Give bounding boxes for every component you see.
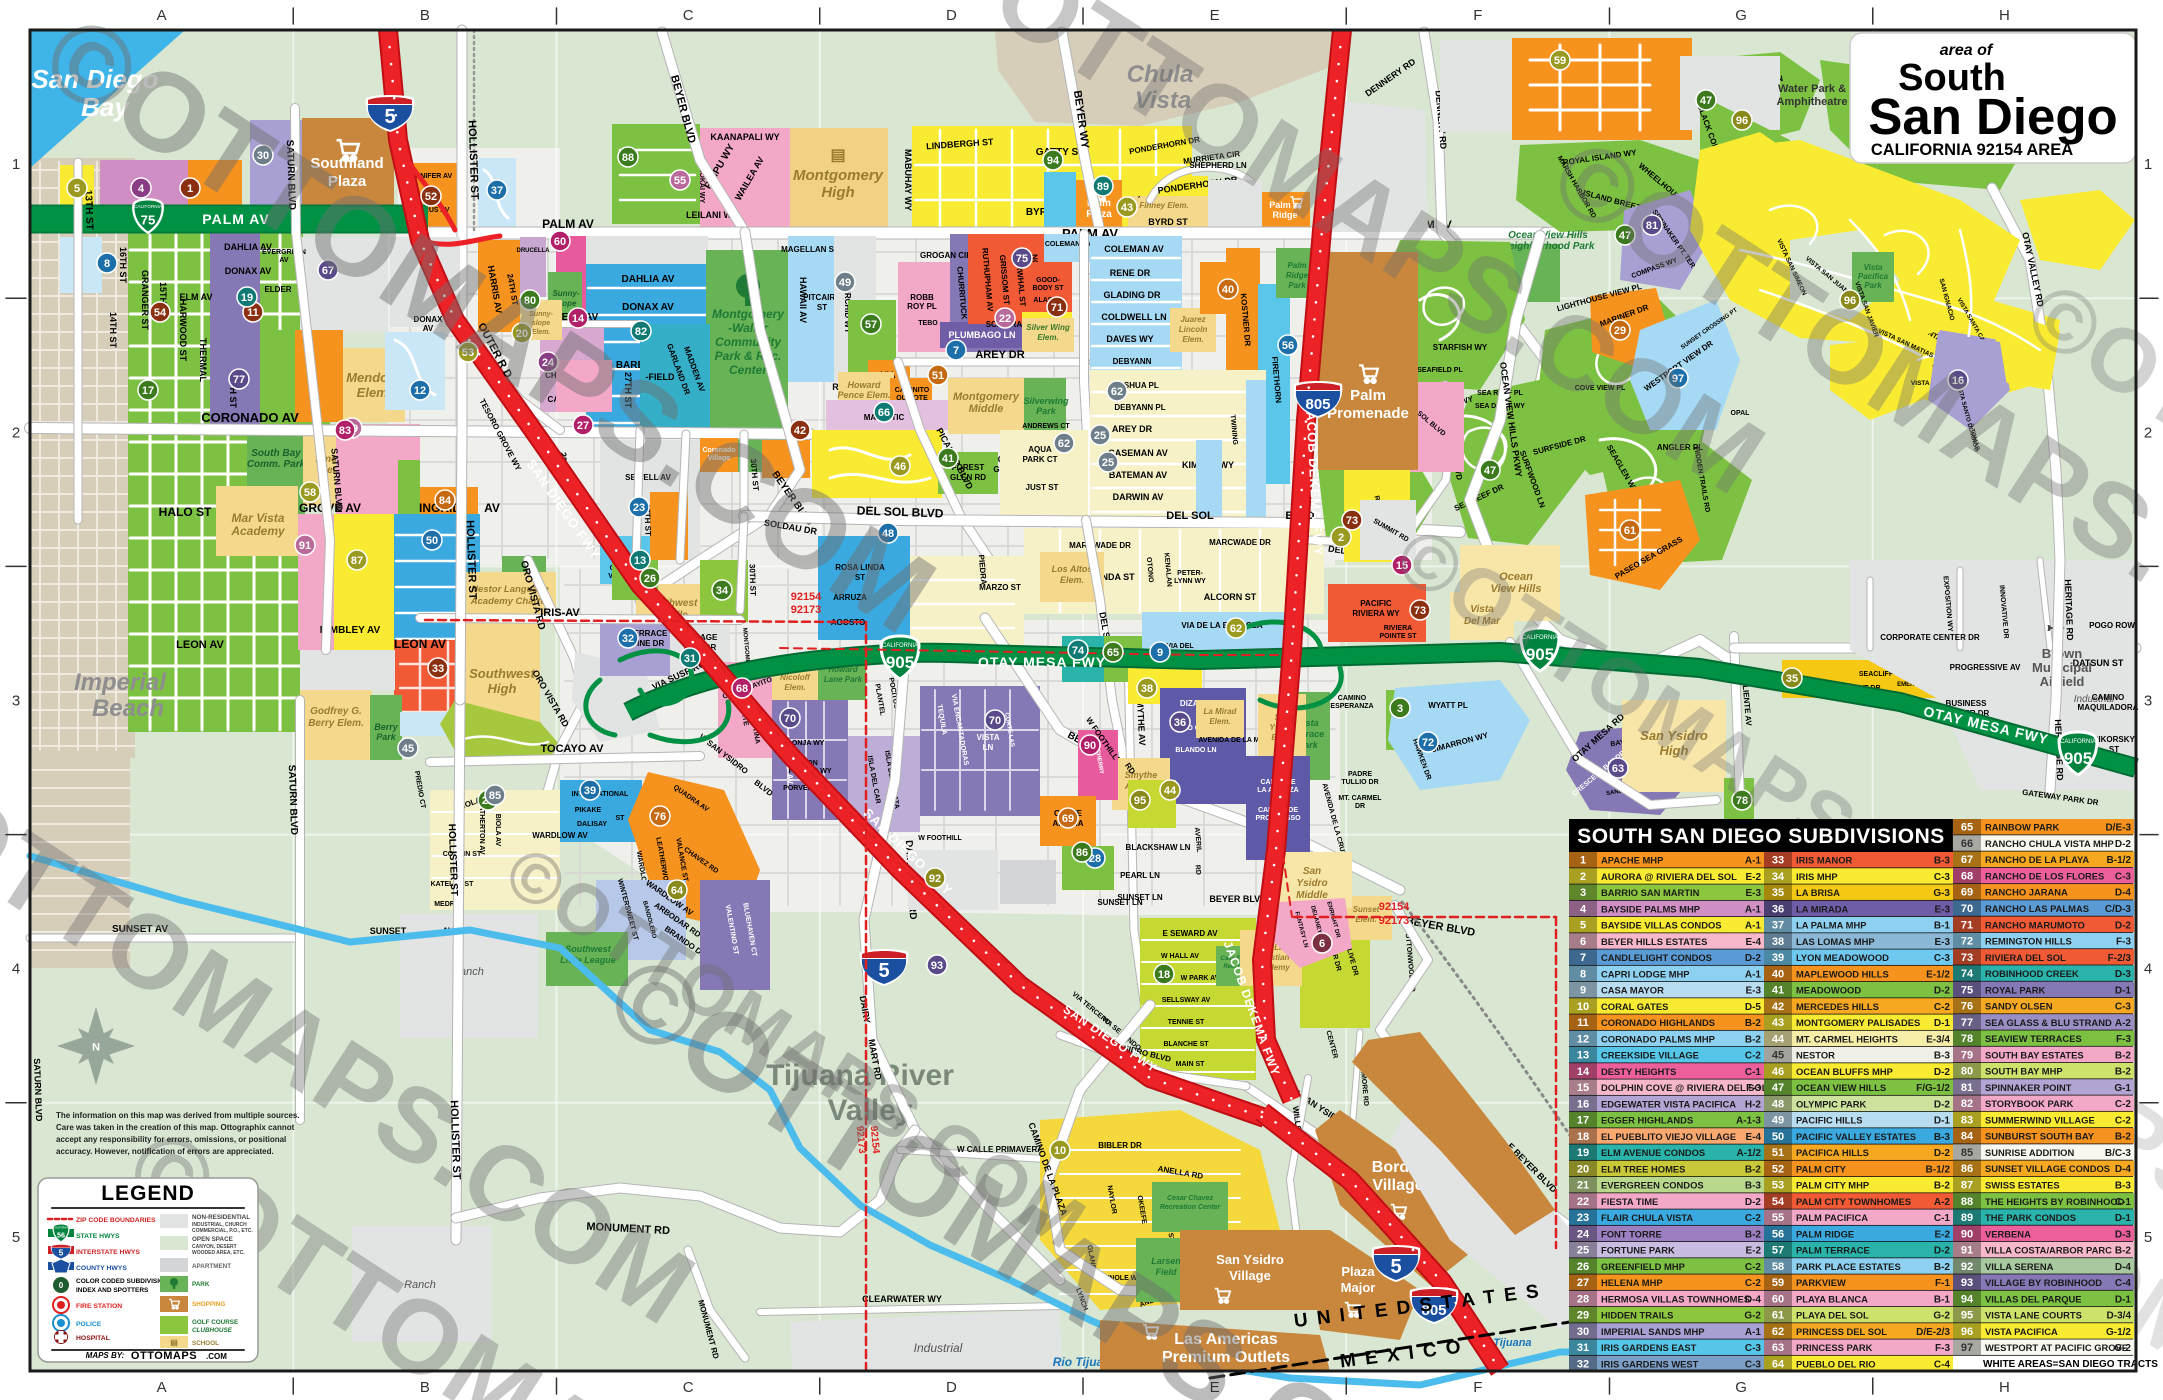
svg-text:B/C-3: B/C-3 bbox=[2105, 1148, 2132, 1159]
svg-text:E-3/4: E-3/4 bbox=[1926, 1034, 1950, 1045]
svg-text:54: 54 bbox=[154, 307, 167, 319]
svg-text:DEBYANN: DEBYANN bbox=[1113, 357, 1152, 366]
svg-text:79: 79 bbox=[1961, 1049, 1973, 1061]
svg-text:11: 11 bbox=[1577, 1017, 1589, 1029]
svg-text:ROBB: ROBB bbox=[910, 293, 934, 302]
svg-text:BEYER BLVD: BEYER BLVD bbox=[1209, 894, 1267, 904]
svg-text:12: 12 bbox=[414, 385, 426, 397]
svg-text:E-3: E-3 bbox=[1745, 986, 1761, 997]
svg-text:4: 4 bbox=[12, 961, 20, 978]
svg-text:40: 40 bbox=[1222, 284, 1234, 296]
svg-text:SCHOOL: SCHOOL bbox=[192, 1340, 219, 1347]
svg-text:Amphitheatre: Amphitheatre bbox=[1777, 96, 1848, 108]
svg-text:EL PUEBLITO VIEJO VILLAGE: EL PUEBLITO VIEJO VILLAGE bbox=[1601, 1131, 1736, 1142]
svg-text:OCEAN VIEW HILLS: OCEAN VIEW HILLS bbox=[1796, 1082, 1886, 1093]
svg-text:PLUMBAGO LN: PLUMBAGO LN bbox=[949, 330, 1016, 340]
svg-text:APARTMENT: APARTMENT bbox=[192, 1263, 231, 1270]
svg-text:C-3: C-3 bbox=[1745, 1343, 1762, 1354]
svg-text:55: 55 bbox=[1772, 1212, 1784, 1224]
svg-text:VERBENA: VERBENA bbox=[1985, 1228, 2031, 1239]
svg-text:A-1/2: A-1/2 bbox=[1737, 1148, 1762, 1159]
svg-text:PARK PLACE ESTATES: PARK PLACE ESTATES bbox=[1796, 1261, 1901, 1272]
svg-text:E-3: E-3 bbox=[1934, 904, 1950, 915]
svg-text:SUNSET LN: SUNSET LN bbox=[1097, 898, 1143, 907]
svg-text:POLICE: POLICE bbox=[76, 1321, 102, 1328]
svg-text:Industrial: Industrial bbox=[914, 1341, 963, 1355]
svg-text:B-2: B-2 bbox=[2115, 1067, 2132, 1078]
svg-text:92: 92 bbox=[929, 873, 941, 885]
svg-text:85: 85 bbox=[1961, 1147, 1973, 1159]
svg-text:22: 22 bbox=[999, 313, 1011, 325]
svg-text:E-4: E-4 bbox=[1745, 937, 1761, 948]
svg-text:H: H bbox=[1999, 7, 2010, 24]
svg-text:8: 8 bbox=[104, 258, 110, 270]
svg-text:D-5: D-5 bbox=[1745, 1002, 1762, 1013]
svg-text:45: 45 bbox=[1772, 1050, 1784, 1062]
svg-text:CALIFORNIA 92154 AREA: CALIFORNIA 92154 AREA bbox=[1871, 141, 2073, 159]
svg-text:Montgomery: Montgomery bbox=[953, 391, 1020, 403]
svg-text:OPEN SPACE: OPEN SPACE bbox=[192, 1236, 233, 1243]
svg-text:SOUTH BAY ESTATES: SOUTH BAY ESTATES bbox=[1985, 1049, 2084, 1060]
svg-text:TENNIE ST: TENNIE ST bbox=[1168, 1019, 1205, 1026]
svg-text:ELM AVENUE CONDOS: ELM AVENUE CONDOS bbox=[1601, 1147, 1705, 1158]
svg-text:IRIS GARDENS EAST: IRIS GARDENS EAST bbox=[1601, 1342, 1697, 1353]
svg-text:LEON AV: LEON AV bbox=[394, 637, 446, 651]
svg-text:High: High bbox=[821, 184, 854, 201]
svg-text:IRIS MANOR: IRIS MANOR bbox=[1796, 855, 1852, 866]
svg-text:77: 77 bbox=[233, 374, 245, 386]
svg-text:D: D bbox=[946, 7, 957, 24]
svg-text:D-3: D-3 bbox=[2115, 1229, 2132, 1240]
svg-text:BLACKSHAW LN: BLACKSHAW LN bbox=[1126, 843, 1191, 852]
svg-text:86: 86 bbox=[1961, 1163, 1973, 1175]
svg-text:MARZO ST: MARZO ST bbox=[979, 583, 1021, 592]
svg-text:19: 19 bbox=[241, 292, 253, 304]
svg-text:3: 3 bbox=[12, 693, 20, 710]
svg-text:B-2: B-2 bbox=[1745, 1018, 1762, 1029]
svg-text:91: 91 bbox=[299, 540, 311, 552]
svg-text:D-4: D-4 bbox=[2115, 1262, 2132, 1273]
svg-text:IMPERIAL SANDS MHP: IMPERIAL SANDS MHP bbox=[1601, 1326, 1704, 1337]
svg-text:47: 47 bbox=[1700, 95, 1712, 107]
svg-text:86: 86 bbox=[1076, 847, 1088, 859]
svg-text:40: 40 bbox=[1772, 968, 1784, 980]
svg-text:PALM RIDGE: PALM RIDGE bbox=[1796, 1228, 1854, 1239]
svg-text:Vista: Vista bbox=[1864, 263, 1883, 272]
svg-text:46: 46 bbox=[894, 461, 906, 473]
svg-text:A: A bbox=[157, 7, 167, 24]
svg-text:Pacifica: Pacifica bbox=[1858, 272, 1889, 281]
svg-text:DONAX AV: DONAX AV bbox=[225, 266, 272, 276]
svg-text:MAPS BY:: MAPS BY: bbox=[86, 1351, 125, 1360]
svg-text:CALIFORNIA: CALIFORNIA bbox=[134, 204, 163, 209]
svg-text:A-1-3: A-1-3 bbox=[1736, 1116, 1761, 1127]
svg-text:24: 24 bbox=[1577, 1228, 1590, 1240]
svg-text:B: B bbox=[420, 1379, 430, 1396]
svg-text:5: 5 bbox=[2144, 1229, 2152, 1246]
svg-text:16TH ST: 16TH ST bbox=[118, 247, 128, 284]
svg-text:C-2: C-2 bbox=[1745, 1051, 1762, 1062]
svg-text:FIESTA TIME: FIESTA TIME bbox=[1601, 1196, 1658, 1207]
svg-text:9: 9 bbox=[1157, 647, 1163, 659]
svg-text:Los Altos: Los Altos bbox=[1052, 564, 1093, 574]
svg-text:MAGELLAN ST: MAGELLAN ST bbox=[781, 245, 839, 254]
svg-text:PUEBLO DEL RIO: PUEBLO DEL RIO bbox=[1796, 1358, 1876, 1369]
svg-text:COLOR CODED SUBDIVISION: COLOR CODED SUBDIVISION bbox=[76, 1278, 169, 1285]
svg-text:28: 28 bbox=[1577, 1293, 1589, 1305]
svg-text:87: 87 bbox=[1961, 1179, 1973, 1191]
svg-text:D-2: D-2 bbox=[1745, 953, 1762, 964]
svg-text:.COM: .COM bbox=[206, 1352, 227, 1361]
svg-text:PACIFIC HILLS: PACIFIC HILLS bbox=[1796, 1115, 1863, 1126]
svg-text:65: 65 bbox=[1107, 647, 1119, 659]
svg-text:93: 93 bbox=[1961, 1277, 1973, 1289]
svg-text:PALM CITY MHP: PALM CITY MHP bbox=[1796, 1180, 1869, 1191]
svg-text:BATEMAN AV: BATEMAN AV bbox=[1109, 470, 1167, 480]
svg-text:73: 73 bbox=[1346, 515, 1358, 527]
svg-text:HERMOSA VILLAS TOWNHOMES: HERMOSA VILLAS TOWNHOMES bbox=[1601, 1293, 1750, 1304]
svg-text:APACHE MHP: APACHE MHP bbox=[1601, 855, 1663, 866]
svg-text:12: 12 bbox=[1577, 1033, 1589, 1045]
svg-text:OTTOMAPS: OTTOMAPS bbox=[131, 1350, 197, 1362]
svg-text:85: 85 bbox=[489, 790, 501, 802]
svg-text:MERCEDES HILLS: MERCEDES HILLS bbox=[1796, 1001, 1879, 1012]
svg-text:WOODED AREA, ETC.: WOODED AREA, ETC. bbox=[192, 1250, 245, 1256]
svg-text:E-2: E-2 bbox=[1934, 1229, 1950, 1240]
svg-text:H-2: H-2 bbox=[1745, 1099, 1762, 1110]
svg-text:GOLF COURSE: GOLF COURSE bbox=[192, 1319, 238, 1326]
svg-text:DRUCELLA: DRUCELLA bbox=[517, 248, 551, 254]
svg-text:BODY ST: BODY ST bbox=[1033, 285, 1065, 292]
svg-text:GROGAN CIR: GROGAN CIR bbox=[920, 251, 972, 260]
svg-text:15: 15 bbox=[1577, 1082, 1589, 1094]
svg-text:Godfrey G.: Godfrey G. bbox=[310, 706, 362, 717]
svg-text:8: 8 bbox=[1580, 968, 1586, 980]
svg-text:F-2/3: F-2/3 bbox=[2108, 953, 2132, 964]
svg-text:Montgomery: Montgomery bbox=[793, 167, 884, 184]
svg-text:DAVES WY: DAVES WY bbox=[1106, 334, 1153, 344]
svg-text:MAPLEWOOD HILLS: MAPLEWOOD HILLS bbox=[1796, 968, 1889, 979]
svg-text:55: 55 bbox=[674, 175, 686, 187]
svg-text:D-2: D-2 bbox=[1934, 1246, 1951, 1257]
svg-text:16: 16 bbox=[1577, 1098, 1589, 1110]
svg-text:B-2: B-2 bbox=[2115, 1132, 2132, 1143]
svg-text:56: 56 bbox=[1772, 1228, 1784, 1240]
svg-text:ZIP CODE BOUNDARIES: ZIP CODE BOUNDARIES bbox=[76, 1217, 156, 1224]
svg-text:18: 18 bbox=[1158, 969, 1170, 981]
svg-text:13: 13 bbox=[634, 555, 646, 567]
svg-text:DESTY HEIGHTS: DESTY HEIGHTS bbox=[1601, 1066, 1676, 1077]
svg-text:B-2: B-2 bbox=[1934, 1262, 1951, 1273]
svg-text:31: 31 bbox=[1577, 1342, 1589, 1354]
svg-text:F: F bbox=[1473, 7, 1482, 24]
svg-text:1: 1 bbox=[2144, 156, 2152, 173]
svg-text:DONAX AV: DONAX AV bbox=[622, 302, 674, 313]
svg-text:Howard: Howard bbox=[847, 380, 881, 390]
svg-text:44: 44 bbox=[1772, 1033, 1785, 1045]
svg-text:9: 9 bbox=[1580, 985, 1586, 997]
svg-text:B-1/2: B-1/2 bbox=[2107, 855, 2132, 866]
svg-text:92: 92 bbox=[1961, 1261, 1973, 1273]
svg-text:San Ysidro: San Ysidro bbox=[1216, 1252, 1284, 1267]
svg-text:F/G-1/2: F/G-1/2 bbox=[1916, 1083, 1950, 1094]
svg-text:PALM CITY: PALM CITY bbox=[1796, 1163, 1847, 1174]
svg-text:ST: ST bbox=[616, 815, 626, 822]
svg-text:51: 51 bbox=[932, 370, 944, 382]
svg-text:accept any responsibility for: accept any responsibility for errors, om… bbox=[56, 1135, 286, 1144]
svg-text:D-2: D-2 bbox=[1934, 1067, 1951, 1078]
svg-text:GLADING DR: GLADING DR bbox=[1104, 290, 1161, 300]
svg-text:75: 75 bbox=[141, 212, 156, 227]
svg-text:18: 18 bbox=[1577, 1131, 1589, 1143]
svg-text:76: 76 bbox=[654, 811, 666, 823]
svg-text:0: 0 bbox=[59, 1281, 64, 1290]
svg-text:5: 5 bbox=[1580, 920, 1586, 932]
svg-text:PARK CT: PARK CT bbox=[1023, 455, 1058, 464]
svg-text:PETER-: PETER- bbox=[1177, 570, 1203, 577]
svg-text:SOUTH SAN DIEGO SUBDIVISIONS: SOUTH SAN DIEGO SUBDIVISIONS bbox=[1577, 825, 1945, 848]
svg-text:56: 56 bbox=[1282, 340, 1294, 352]
svg-text:A-2: A-2 bbox=[1934, 1197, 1951, 1208]
svg-text:Promenade: Promenade bbox=[1327, 405, 1409, 422]
svg-text:95: 95 bbox=[1961, 1310, 1973, 1322]
svg-text:VISTA: VISTA bbox=[977, 733, 1000, 742]
svg-text:C-4: C-4 bbox=[1934, 1359, 1951, 1370]
svg-text:C: C bbox=[683, 1379, 694, 1396]
svg-text:805: 805 bbox=[1305, 396, 1330, 413]
svg-text:G: G bbox=[1735, 7, 1747, 24]
svg-text:70: 70 bbox=[989, 715, 1001, 727]
svg-text:KAANAPALI WY: KAANAPALI WY bbox=[710, 132, 779, 142]
svg-text:60: 60 bbox=[1772, 1293, 1784, 1305]
svg-text:43: 43 bbox=[1121, 202, 1133, 214]
svg-text:RENE DR: RENE DR bbox=[1110, 268, 1151, 278]
svg-text:PIKAKE: PIKAKE bbox=[575, 807, 602, 814]
svg-text:49: 49 bbox=[839, 277, 851, 289]
svg-text:61: 61 bbox=[1624, 525, 1636, 537]
svg-text:D: D bbox=[946, 1379, 957, 1396]
svg-text:STORYBOOK PARK: STORYBOOK PARK bbox=[1985, 1098, 2074, 1109]
svg-text:56: 56 bbox=[57, 1231, 65, 1239]
svg-text:95: 95 bbox=[1134, 795, 1146, 807]
svg-text:CREEKSIDE VILLAGE: CREEKSIDE VILLAGE bbox=[1601, 1050, 1699, 1061]
svg-text:Silverwing: Silverwing bbox=[1023, 396, 1069, 406]
svg-text:59: 59 bbox=[1772, 1277, 1784, 1289]
svg-text:NESTOR: NESTOR bbox=[1796, 1050, 1835, 1061]
svg-text:65: 65 bbox=[1961, 822, 1973, 834]
svg-text:IRIS GARDENS WEST: IRIS GARDENS WEST bbox=[1601, 1358, 1699, 1369]
svg-text:82: 82 bbox=[1961, 1098, 1973, 1110]
svg-text:MARCWADE DR: MARCWADE DR bbox=[1069, 541, 1131, 550]
svg-text:A-2: A-2 bbox=[2115, 1018, 2132, 1029]
svg-text:89: 89 bbox=[1097, 181, 1109, 193]
svg-text:A-1: A-1 bbox=[1745, 1327, 1762, 1338]
svg-text:Lincoln: Lincoln bbox=[1179, 325, 1208, 334]
svg-text:W HALL AV: W HALL AV bbox=[1161, 953, 1199, 960]
svg-text:MAQUILADORA: MAQUILADORA bbox=[2078, 703, 2139, 712]
svg-text:75: 75 bbox=[1016, 253, 1028, 265]
svg-text:69: 69 bbox=[1062, 813, 1074, 825]
svg-text:Palm: Palm bbox=[1287, 261, 1306, 270]
svg-text:Comm. Park: Comm. Park bbox=[247, 459, 306, 470]
svg-text:10: 10 bbox=[1054, 1145, 1066, 1157]
svg-text:SIKORSKY: SIKORSKY bbox=[2093, 735, 2135, 744]
svg-text:25: 25 bbox=[1094, 430, 1106, 442]
svg-text:5: 5 bbox=[1390, 1256, 1401, 1278]
svg-text:C-2: C-2 bbox=[1745, 1262, 1762, 1273]
svg-text:Lane Park: Lane Park bbox=[824, 675, 863, 684]
svg-text:PARK: PARK bbox=[192, 1281, 210, 1288]
svg-text:70: 70 bbox=[1961, 903, 1973, 915]
svg-text:SHOPPING: SHOPPING bbox=[192, 1301, 225, 1308]
svg-text:AREY DR: AREY DR bbox=[975, 349, 1024, 361]
svg-text:72: 72 bbox=[1961, 936, 1973, 948]
svg-text:B-2: B-2 bbox=[2115, 1050, 2132, 1061]
svg-text:2: 2 bbox=[1338, 532, 1344, 544]
svg-text:BARRIO SAN MARTIN: BARRIO SAN MARTIN bbox=[1601, 887, 1700, 898]
svg-text:G-2: G-2 bbox=[1744, 1311, 1761, 1322]
svg-text:MARCWADE DR: MARCWADE DR bbox=[1209, 538, 1271, 547]
svg-text:32: 32 bbox=[622, 633, 634, 645]
svg-text:C-2: C-2 bbox=[1745, 1213, 1762, 1224]
svg-text:LA BRISA: LA BRISA bbox=[1796, 887, 1840, 898]
svg-text:E-2: E-2 bbox=[1745, 872, 1761, 883]
svg-text:42: 42 bbox=[794, 425, 806, 437]
svg-text:D-2: D-2 bbox=[1934, 986, 1951, 997]
svg-text:90: 90 bbox=[1084, 740, 1096, 752]
svg-text:29: 29 bbox=[1577, 1310, 1589, 1322]
svg-text:NON-RESIDENTIAL: NON-RESIDENTIAL bbox=[192, 1214, 250, 1221]
svg-text:B-2: B-2 bbox=[1934, 1181, 1951, 1192]
svg-text:38: 38 bbox=[1772, 936, 1784, 948]
svg-text:62: 62 bbox=[1111, 386, 1123, 398]
svg-text:VILLAS DEL PARQUE: VILLAS DEL PARQUE bbox=[1985, 1293, 2082, 1304]
svg-text:10: 10 bbox=[1577, 1001, 1589, 1013]
svg-text:BLANCHE ST: BLANCHE ST bbox=[1163, 1041, 1209, 1048]
svg-text:C-3: C-3 bbox=[1934, 953, 1951, 964]
svg-text:DOLPHIN COVE @ RIVIERA DEL SOL: DOLPHIN COVE @ RIVIERA DEL SOL bbox=[1601, 1082, 1768, 1093]
svg-text:Elem.: Elem. bbox=[1037, 333, 1058, 342]
svg-text:57: 57 bbox=[865, 319, 877, 331]
svg-text:D-2: D-2 bbox=[2115, 920, 2132, 931]
svg-text:54: 54 bbox=[1772, 1196, 1785, 1208]
svg-text:VILLAGE BY ROBINHOOD: VILLAGE BY ROBINHOOD bbox=[1985, 1277, 2102, 1288]
svg-text:F-3: F-3 bbox=[1746, 1083, 1761, 1094]
svg-text:35: 35 bbox=[1772, 887, 1784, 899]
svg-text:68: 68 bbox=[1961, 870, 1973, 882]
svg-text:25: 25 bbox=[1577, 1245, 1589, 1257]
svg-text:31: 31 bbox=[684, 653, 696, 665]
svg-text:34: 34 bbox=[1772, 871, 1785, 883]
svg-text:POINTE ST: POINTE ST bbox=[1380, 633, 1418, 640]
svg-text:Recreation Center: Recreation Center bbox=[1160, 1204, 1222, 1211]
svg-text:Major: Major bbox=[1341, 1280, 1376, 1295]
svg-text:Village: Village bbox=[1229, 1268, 1271, 1283]
svg-text:Palm: Palm bbox=[1350, 387, 1386, 404]
svg-text:62: 62 bbox=[1230, 623, 1242, 635]
svg-text:14TH ST: 14TH ST bbox=[108, 312, 118, 349]
svg-text:C-1: C-1 bbox=[1934, 1213, 1951, 1224]
svg-text:74: 74 bbox=[1961, 968, 1974, 980]
svg-text:SUNRISE ADDITION: SUNRISE ADDITION bbox=[1985, 1147, 2074, 1158]
svg-text:A: A bbox=[157, 1379, 167, 1396]
svg-text:84: 84 bbox=[439, 495, 452, 507]
svg-text:Juarez: Juarez bbox=[1180, 315, 1205, 324]
svg-text:E SEWARD AV: E SEWARD AV bbox=[1162, 929, 1218, 938]
svg-text:D-2: D-2 bbox=[1934, 1148, 1951, 1159]
svg-text:5: 5 bbox=[74, 183, 80, 195]
svg-text:CAMINO: CAMINO bbox=[2092, 693, 2124, 702]
svg-text:High: High bbox=[488, 681, 517, 696]
svg-text:27: 27 bbox=[1577, 1277, 1589, 1289]
svg-text:66: 66 bbox=[1961, 838, 1973, 850]
svg-text:21: 21 bbox=[1577, 1180, 1589, 1192]
svg-text:RANCHO LAS PALMAS: RANCHO LAS PALMAS bbox=[1985, 903, 2089, 914]
svg-text:TEBO: TEBO bbox=[918, 320, 938, 327]
svg-text:F-3: F-3 bbox=[2116, 1034, 2131, 1045]
svg-text:HELENA MHP: HELENA MHP bbox=[1601, 1277, 1663, 1288]
svg-text:G-3: G-3 bbox=[1933, 888, 1950, 899]
svg-text:81: 81 bbox=[1961, 1082, 1973, 1094]
svg-text:D-1: D-1 bbox=[1934, 1018, 1951, 1029]
svg-text:94: 94 bbox=[1961, 1293, 1974, 1305]
svg-text:49: 49 bbox=[1772, 1115, 1784, 1127]
svg-text:ROYAL PARK: ROYAL PARK bbox=[1985, 984, 2045, 995]
svg-text:75: 75 bbox=[1961, 984, 1973, 996]
svg-text:SEAVIEW TERRACES: SEAVIEW TERRACES bbox=[1985, 1033, 2082, 1044]
svg-text:96: 96 bbox=[1961, 1326, 1973, 1338]
svg-text:CALIFORNIA: CALIFORNIA bbox=[2060, 739, 2096, 745]
svg-text:The information on this map wa: The information on this map was derived … bbox=[56, 1111, 300, 1120]
svg-text:4: 4 bbox=[1580, 903, 1587, 915]
svg-text:RANCHO DE LOS FLORES: RANCHO DE LOS FLORES bbox=[1985, 870, 2104, 881]
svg-text:C-3: C-3 bbox=[1745, 1359, 1762, 1370]
svg-text:73: 73 bbox=[1961, 952, 1973, 964]
svg-text:B-1/2: B-1/2 bbox=[1926, 1164, 1951, 1175]
svg-text:26: 26 bbox=[1577, 1261, 1589, 1273]
svg-text:PRINCESS PARK: PRINCESS PARK bbox=[1796, 1342, 1873, 1353]
svg-text:B-3: B-3 bbox=[1934, 1132, 1951, 1143]
svg-text:E-3: E-3 bbox=[1745, 888, 1761, 899]
svg-text:97: 97 bbox=[1961, 1342, 1973, 1354]
svg-text:46: 46 bbox=[1772, 1066, 1784, 1078]
svg-text:E-2: E-2 bbox=[1745, 1246, 1761, 1257]
svg-text:W PARK AV: W PARK AV bbox=[1181, 975, 1220, 982]
svg-text:SEAFIELD PL: SEAFIELD PL bbox=[1417, 367, 1463, 374]
svg-text:14: 14 bbox=[1577, 1066, 1590, 1078]
svg-text:11: 11 bbox=[247, 307, 259, 319]
svg-text:LN: LN bbox=[983, 743, 994, 752]
svg-text:Cesar Chavez: Cesar Chavez bbox=[1167, 1195, 1213, 1202]
svg-text:BIBLER DR: BIBLER DR bbox=[1098, 1141, 1142, 1150]
svg-text:Berry Elem.: Berry Elem. bbox=[308, 718, 364, 729]
svg-text:INTERSTATE HWYS: INTERSTATE HWYS bbox=[76, 1249, 140, 1256]
svg-text:CASA MAYOR: CASA MAYOR bbox=[1601, 985, 1664, 996]
svg-text:D-4: D-4 bbox=[2115, 1164, 2132, 1175]
svg-text:61: 61 bbox=[1772, 1310, 1784, 1322]
svg-text:TOCAYO AV: TOCAYO AV bbox=[541, 743, 605, 755]
svg-text:RD: RD bbox=[1194, 865, 1202, 876]
svg-text:VIA DEL: VIA DEL bbox=[1166, 643, 1194, 650]
svg-text:4: 4 bbox=[138, 183, 145, 195]
svg-text:SEA GLASS & BLU STRAND: SEA GLASS & BLU STRAND bbox=[1985, 1017, 2112, 1028]
svg-text:B-1: B-1 bbox=[1934, 921, 1951, 932]
svg-text:CLUBHOUSE: CLUBHOUSE bbox=[192, 1327, 233, 1334]
svg-text:ROY PL: ROY PL bbox=[907, 302, 937, 311]
svg-text:C: C bbox=[683, 7, 694, 24]
svg-text:CORAL GATES: CORAL GATES bbox=[1601, 1001, 1668, 1012]
svg-text:64: 64 bbox=[1772, 1358, 1785, 1370]
